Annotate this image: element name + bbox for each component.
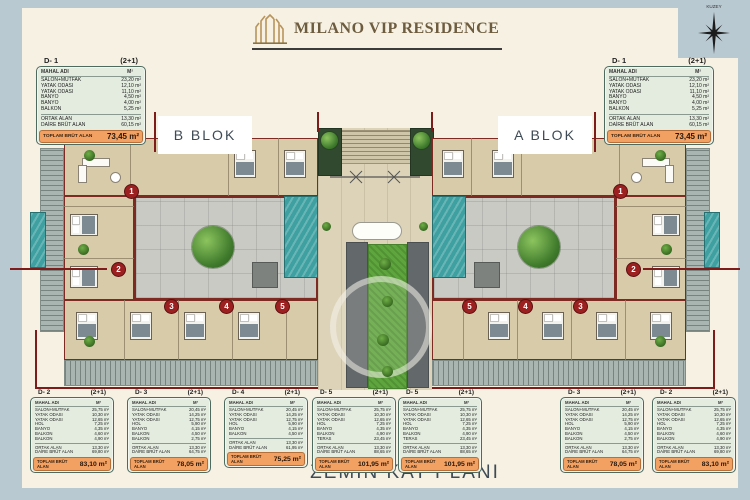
shrub-icon [377,334,389,346]
unit-marker: 2 [626,262,641,277]
unit-scheme: (2+1) [91,389,106,396]
room-label: DAİRE BRÜT ALAN [403,450,441,455]
total-row: TOPLAM BRÜT ALAN101,95 m² [401,457,479,471]
section-line [594,112,596,152]
unit-code: D- 5 [406,389,418,396]
column-header-area: M² [695,69,709,75]
section-line [35,330,37,389]
room-label: DAİRE BRÜT ALAN [657,450,695,455]
unit-table-body: MAHAL ADIM²SALON+MUTFAK23,20 m²YATAK ODA… [604,66,714,145]
total-label: TOPLAM BRÜT ALAN [231,454,274,464]
tree-icon [321,132,338,149]
bed-icon [70,214,98,236]
room-area: 23,45 m² [374,437,391,442]
unit-scheme: (2+1) [459,389,474,396]
bed-icon [542,312,564,340]
unit-table-body: MAHAL ADIM²SALON+MUTFAK25,75 m²YATAK ODA… [652,397,736,473]
room-row: DAİRE BRÜT ALAN69,80 m² [35,450,109,455]
compass-label: KUZEY [706,4,721,9]
total-value: 78,05 m² [177,461,204,468]
sofa [78,165,87,183]
room-area: 88,65 m² [374,450,391,455]
room-label: BALKON [657,437,674,442]
total-value: 73,45 m² [107,132,139,141]
unit-table-header: D- 3(2+1) [560,389,644,396]
shrub-icon [382,366,393,377]
unit-table-header: D- 2(2+1) [30,389,114,396]
room-row: DAİRE BRÜT ALAN64,75 m² [565,450,639,455]
room-area: 4,50 m² [288,432,303,437]
bed-icon [596,312,618,340]
entrance-canopy-icon [328,168,422,186]
wall-divider [64,206,134,207]
block-a-side-pool [704,212,720,268]
total-value: 101,95 m² [358,461,389,468]
room-area: 2,75 m² [191,437,206,442]
wall-divider [471,138,472,196]
unit-table-body: MAHAL ADIM²SALON+MUTFAK20,45 m²YATAK ODA… [560,397,644,473]
room-label: DAİRE BRÜT ALAN [317,450,355,455]
column-header-name: MAHAL ADI [609,69,637,75]
bed-icon [488,312,510,340]
column-header-area: M² [464,400,477,405]
room-label: DAİRE BRÜT ALAN [35,450,73,455]
table-divider [317,443,391,444]
column-header-name: MAHAL ADI [41,69,69,75]
watermark-logo [330,276,432,378]
total-label: TOPLAM BRÜT ALAN [37,459,80,469]
bed-icon [442,150,464,178]
section-line [643,268,740,270]
unit-table-d3: D- 3(2+1)MAHAL ADIM²SALON+MUTFAK20,45 m²… [127,389,211,473]
unit-table-body: MAHAL ADIM²SALON+MUTFAK23,20 m²YATAK ODA… [36,66,146,145]
total-row: TOPLAM BRÜT ALAN83,10 m² [655,457,733,471]
shrub-icon [655,336,666,347]
column-header-name: MAHAL ADI [35,400,59,405]
shrub-icon [84,336,95,347]
section-line [317,112,319,132]
column-headers: MAHAL ADIM² [35,400,109,407]
room-area: 88,65 m² [460,450,477,455]
unit-scheme: (2+1) [285,389,300,396]
floor-plan-page: MILANO VIP RESIDENCE KUZEY B BLOK A BLOK [0,0,750,500]
unit-marker: 3 [164,299,179,314]
unit-table-header: D- 5(2+1) [312,389,396,396]
unit-table-body: MAHAL ADIM²SALON+MUTFAK25,75 m²YATAK ODA… [312,397,396,473]
room-label: TERAS [403,437,417,442]
compass-icon: KUZEY [696,2,732,56]
room-area: 5,25 m² [124,107,141,113]
column-headers: MAHAL ADIM² [403,400,477,407]
wall-divider [616,258,686,259]
sofa [665,165,674,183]
room-label: DAİRE BRÜT ALAN [229,446,267,451]
block-a-pool [432,196,466,278]
block-b-bottom-balconies [64,360,318,386]
room-row: DAİRE BRÜT ALAN60,15 m² [609,123,709,129]
unit-table-header: D- 1(2+1) [604,56,714,65]
column-headers: MAHAL ADIM² [565,400,639,407]
unit-code: D- 3 [135,389,147,396]
total-value: 78,05 m² [610,461,637,468]
unit-marker: 2 [111,262,126,277]
room-area: 61,95 m² [286,446,303,451]
shrub-icon [379,258,391,270]
bed-icon [184,312,206,340]
total-label: TOPLAM BRÜT ALAN [567,459,610,469]
block-label-b: B BLOK [158,116,252,154]
table-divider [132,443,206,444]
column-header-name: MAHAL ADI [565,400,589,405]
room-label: DAİRE BRÜT ALAN [132,450,170,455]
column-header-area: M² [626,400,639,405]
column-headers: MAHAL ADIM² [317,400,391,407]
unit-marker: 4 [518,299,533,314]
room-area: 5,25 m² [692,107,709,113]
room-label: DAİRE BRÜT ALAN [41,123,85,129]
tree-icon [192,226,234,268]
block-b-courtyard-structure [252,262,278,288]
room-area: 64,75 m² [189,450,206,455]
table-divider [35,443,109,444]
column-header-name: MAHAL ADI [317,400,341,405]
room-row: BALKON2,75 m² [132,437,206,442]
total-row: TOPLAM BRÜT ALAN78,05 m² [130,457,208,471]
total-label: TOPLAM BRÜT ALAN [319,459,358,469]
unit-code: D- 4 [232,389,244,396]
shrub-icon [419,222,428,231]
total-value: 73,45 m² [675,132,707,141]
table-divider [565,443,639,444]
total-label: TOPLAM BRÜT ALAN [659,459,702,469]
brand-underline [252,48,502,50]
room-row: TERAS23,45 m² [403,437,477,442]
room-area: 64,75 m² [622,450,639,455]
shrub-icon [382,296,393,307]
bed-icon [652,214,680,236]
unit-table-header: D- 1(2+1) [36,56,146,65]
room-row: DAİRE BRÜT ALAN64,75 m² [132,450,206,455]
block-b-side-pool [30,212,46,268]
room-row: BALKON4,90 m² [657,437,731,442]
unit-table-header: D- 4(2+1) [224,389,308,396]
total-label: TOPLAM BRÜT ALAN [134,459,177,469]
unit-code: D- 1 [44,56,58,65]
unit-code: D- 2 [660,389,672,396]
wall-divider [124,300,125,360]
room-row: DAİRE BRÜT ALAN60,15 m² [41,123,141,129]
total-row: TOPLAM BRÜT ALAN101,95 m² [315,457,393,471]
shrub-icon [655,150,666,161]
total-value: 75,25 m² [274,456,301,463]
room-label: DAİRE BRÜT ALAN [565,450,603,455]
unit-marker: 3 [573,299,588,314]
unit-table-body: MAHAL ADIM²SALON+MUTFAK20,45 m²YATAK ODA… [127,397,211,473]
room-label: BALKON [229,432,246,437]
column-headers: MAHAL ADIM² [41,69,141,77]
room-label: TERAS [317,437,331,442]
room-area: 60,15 m² [689,123,709,129]
unit-table-d2: D- 2(2+1)MAHAL ADIM²SALON+MUTFAK25,75 m²… [652,389,736,473]
room-row: DAİRE BRÜT ALAN88,65 m² [403,450,477,455]
total-row: TOPLAM BRÜT ALAN78,05 m² [563,457,641,471]
bed-icon [130,312,152,340]
column-header-area: M² [96,400,109,405]
shrub-icon [78,244,89,255]
unit-marker: 5 [275,299,290,314]
building-logo-icon [252,13,288,45]
column-header-name: MAHAL ADI [657,400,681,405]
room-label: BALKON [565,437,582,442]
bed-icon [238,312,260,340]
unit-table-d1: D- 1(2+1)MAHAL ADIM²SALON+MUTFAK23,20 m²… [604,56,714,145]
unit-table-d3: D- 3(2+1)MAHAL ADIM²SALON+MUTFAK20,45 m²… [560,389,644,473]
bed-icon [284,150,306,178]
room-label: DAİRE BRÜT ALAN [609,123,653,129]
total-value: 83,10 m² [80,461,107,468]
unit-table-header: D- 2(2+1) [652,389,736,396]
unit-scheme: (2+1) [188,389,203,396]
unit-code: D- 5 [320,389,332,396]
unit-table-d4: D- 4(2+1)MAHAL ADIM²SALON+MUTFAK20,45 m²… [224,389,308,468]
total-label: TOPLAM BRÜT ALAN [43,134,92,139]
block-a-bottom-balconies [432,360,686,386]
unit-table-header: D- 3(2+1) [127,389,211,396]
unit-marker: 4 [219,299,234,314]
column-header-area: M² [290,400,303,405]
total-value: 83,10 m² [702,461,729,468]
unit-scheme: (2+1) [373,389,388,396]
unit-table-header: D- 5(2+1) [398,389,482,396]
unit-scheme: (2+1) [120,56,138,65]
room-area: 69,80 m² [714,450,731,455]
room-label: BALKON [609,107,629,113]
room-area: 4,90 m² [716,437,731,442]
total-row: TOPLAM BRÜT ALAN73,45 m² [607,130,711,143]
unit-table-d5: D- 5(2+1)MAHAL ADIM²SALON+MUTFAK25,75 m²… [312,389,396,473]
unit-table-d2: D- 2(2+1)MAHAL ADIM²SALON+MUTFAK25,75 m²… [30,389,114,473]
column-headers: MAHAL ADIM² [657,400,731,407]
room-area: 2,75 m² [624,437,639,442]
table-divider [657,443,731,444]
room-area: 60,15 m² [121,123,141,129]
unit-marker: 1 [124,184,139,199]
unit-table-body: MAHAL ADIM²SALON+MUTFAK25,75 m²YATAK ODA… [398,397,482,473]
total-row: TOPLAM BRÜT ALAN83,10 m² [33,457,111,471]
unit-marker: 5 [462,299,477,314]
section-line [713,330,715,389]
unit-table-body: MAHAL ADIM²SALON+MUTFAK25,75 m²YATAK ODA… [30,397,114,473]
column-headers: MAHAL ADIM² [609,69,709,77]
block-a-courtyard-structure [474,262,500,288]
section-line [431,112,433,132]
brand-header: MILANO VIP RESIDENCE [252,12,504,46]
column-header-area: M² [718,400,731,405]
room-row: BALKON4,50 m² [229,432,303,437]
tree-icon [413,132,430,149]
room-row: BALKON2,75 m² [565,437,639,442]
column-header-area: M² [378,400,391,405]
bed-icon [492,150,514,178]
room-area: 4,90 m² [94,437,109,442]
column-header-area: M² [127,69,141,75]
brand-title: MILANO VIP RESIDENCE [294,20,499,38]
room-row: BALKON5,25 m² [609,107,709,113]
wall-divider [625,300,626,360]
block-b-pool [284,196,318,278]
room-row: BALKON5,25 m² [41,107,141,113]
section-line [10,268,107,270]
unit-scheme: (2+1) [688,56,706,65]
wall-divider [278,138,279,196]
wall-divider [616,206,686,207]
column-header-name: MAHAL ADI [132,400,156,405]
room-row: BALKON4,90 m² [35,437,109,442]
unit-code: D- 1 [612,56,626,65]
reception-desk [352,222,402,240]
wall-divider [64,258,134,259]
tree-icon [518,226,560,268]
total-row: TOPLAM BRÜT ALAN75,25 m² [227,452,305,466]
unit-scheme: (2+1) [621,389,636,396]
room-row: TERAS23,45 m² [317,437,391,442]
room-row: DAİRE BRÜT ALAN61,95 m² [229,446,303,451]
table-divider [403,443,477,444]
table-icon [110,172,121,183]
room-label: BALKON [35,437,52,442]
room-label: BALKON [41,107,61,113]
column-header-area: M² [193,400,206,405]
section-line [154,112,156,152]
unit-code: D- 2 [38,389,50,396]
room-area: 23,45 m² [460,437,477,442]
table-icon [631,172,642,183]
column-headers: MAHAL ADIM² [229,400,303,407]
unit-table-body: MAHAL ADIM²SALON+MUTFAK20,45 m²YATAK ODA… [224,397,308,468]
column-headers: MAHAL ADIM² [132,400,206,407]
unit-table-d5: D- 5(2+1)MAHAL ADIM²SALON+MUTFAK25,75 m²… [398,389,482,473]
bed-icon [234,150,256,178]
unit-marker: 1 [613,184,628,199]
shrub-icon [84,150,95,161]
column-header-name: MAHAL ADI [229,400,253,405]
unit-scheme: (2+1) [713,389,728,396]
room-row: DAİRE BRÜT ALAN69,80 m² [657,450,731,455]
room-row: DAİRE BRÜT ALAN88,65 m² [317,450,391,455]
shrub-icon [661,244,672,255]
wall-divider [571,300,572,360]
shrub-icon [322,222,331,231]
block-label-a: A BLOK [498,116,592,154]
column-header-name: MAHAL ADI [403,400,427,405]
room-label: BALKON [132,437,149,442]
entrance-stairs [330,130,422,164]
total-value: 101,95 m² [444,461,475,468]
room-area: 69,80 m² [92,450,109,455]
unit-table-d1: D- 1(2+1)MAHAL ADIM²SALON+MUTFAK23,20 m²… [36,56,146,145]
unit-code: D- 3 [568,389,580,396]
total-label: TOPLAM BRÜT ALAN [405,459,444,469]
total-label: TOPLAM BRÜT ALAN [611,134,660,139]
total-row: TOPLAM BRÜT ALAN73,45 m² [39,130,143,143]
